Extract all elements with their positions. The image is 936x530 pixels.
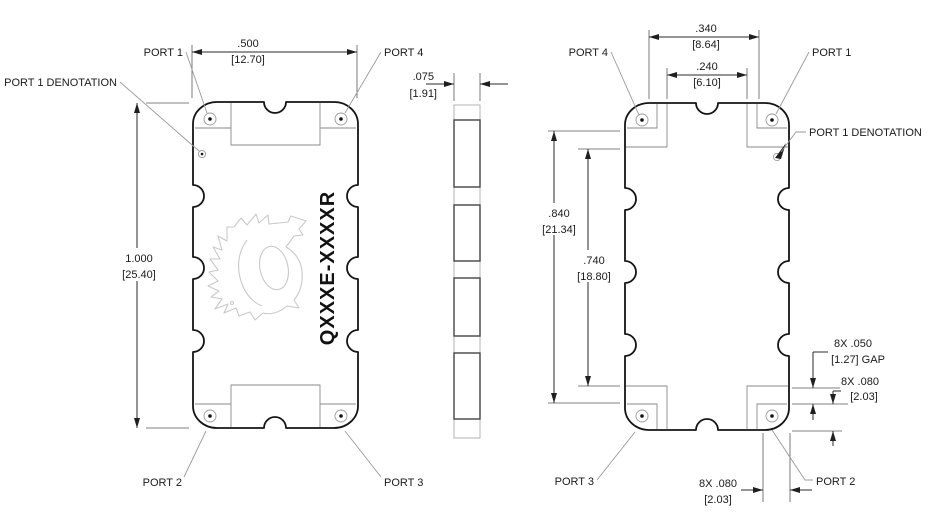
port1-label-bottom: PORT 1 [812, 47, 851, 59]
bottom-view-body-outline [625, 103, 789, 430]
dim-pad-side-in: 8X .080 [841, 376, 879, 388]
dim-width-mm: [12.70] [231, 54, 265, 66]
port4-label-bottom: PORT 4 [569, 47, 608, 59]
port1-label-top: PORT 1 [144, 47, 183, 59]
bottom-view-pad-circles [636, 114, 778, 422]
dim-pad-side-bottom-view: 8X .080 [2.03] [792, 376, 879, 446]
bottom-view [625, 103, 789, 430]
dim-gap-mm: [1.27] GAP [831, 354, 885, 366]
top-view: QXXXE-XXXXR [193, 102, 358, 428]
top-view-labels: PORT 1 PORT 4 PORT 1 DENOTATION PORT 2 P… [4, 47, 423, 489]
port2-label-top: PORT 2 [143, 477, 182, 489]
dim-pad-span-mm: [8.64] [692, 39, 720, 51]
side-view [454, 105, 480, 438]
dim-height-mm: [25.40] [122, 269, 156, 281]
port2-label-bottom: PORT 2 [816, 476, 855, 488]
dim-inner-span-in: .240 [696, 61, 717, 73]
dim-inner-height-in: .740 [583, 255, 604, 267]
drawing-canvas: QXXXE-XXXXR .500 [12.70] [0, 0, 936, 530]
dim-inner-span-mm: [6.10] [693, 77, 721, 89]
port1-denotation-mark-bottom [773, 143, 786, 161]
part-number: QXXXE-XXXXR [317, 191, 339, 345]
port3-label-bottom: PORT 3 [555, 476, 594, 488]
port1-denotation-mark-top [198, 150, 205, 157]
dim-pad-bottom-bottom-view: 8X .080 [2.03] [699, 433, 812, 506]
dim-gap-in: 8X .050 [834, 338, 872, 350]
dim-thickness-mm: [1.91] [409, 88, 437, 100]
dim-pad-bottom-in: 8X .080 [699, 478, 737, 490]
bottom-view-pad-lines [626, 104, 788, 429]
dim-pad-side-mm: [2.03] [850, 391, 878, 403]
dim-inner-span-bottom-view: .240 [6.10] [667, 61, 747, 99]
dim-outer-height-mm: [21.34] [542, 224, 576, 236]
dim-pad-bottom-mm: [2.03] [704, 494, 732, 506]
dim-thickness-side-view: .075 [1.91] [409, 71, 508, 101]
engineering-drawing: QXXXE-XXXXR .500 [12.70] [0, 0, 936, 530]
dim-pad-span-in: .340 [695, 23, 716, 35]
port1-denotation-label-bottom: PORT 1 DENOTATION [809, 127, 922, 139]
dragon-logo [208, 214, 306, 320]
port3-label-top: PORT 3 [384, 477, 423, 489]
dim-inner-height-bottom-view: .740 [18.80] [569, 149, 620, 386]
dim-height-top-view: 1.000 [25.40] [114, 103, 189, 428]
dim-width-in: .500 [237, 38, 258, 50]
dim-height-in: 1.000 [125, 253, 153, 265]
dim-width-top-view: .500 [12.70] [192, 38, 357, 98]
port4-label-top: PORT 4 [384, 47, 423, 59]
dim-outer-height-in: .840 [548, 208, 569, 220]
dim-thickness-in: .075 [413, 71, 434, 83]
dim-inner-height-mm: [18.80] [577, 271, 611, 283]
port1-denotation-label-top: PORT 1 DENOTATION [4, 77, 117, 89]
side-view-metallization-segments [454, 120, 480, 419]
